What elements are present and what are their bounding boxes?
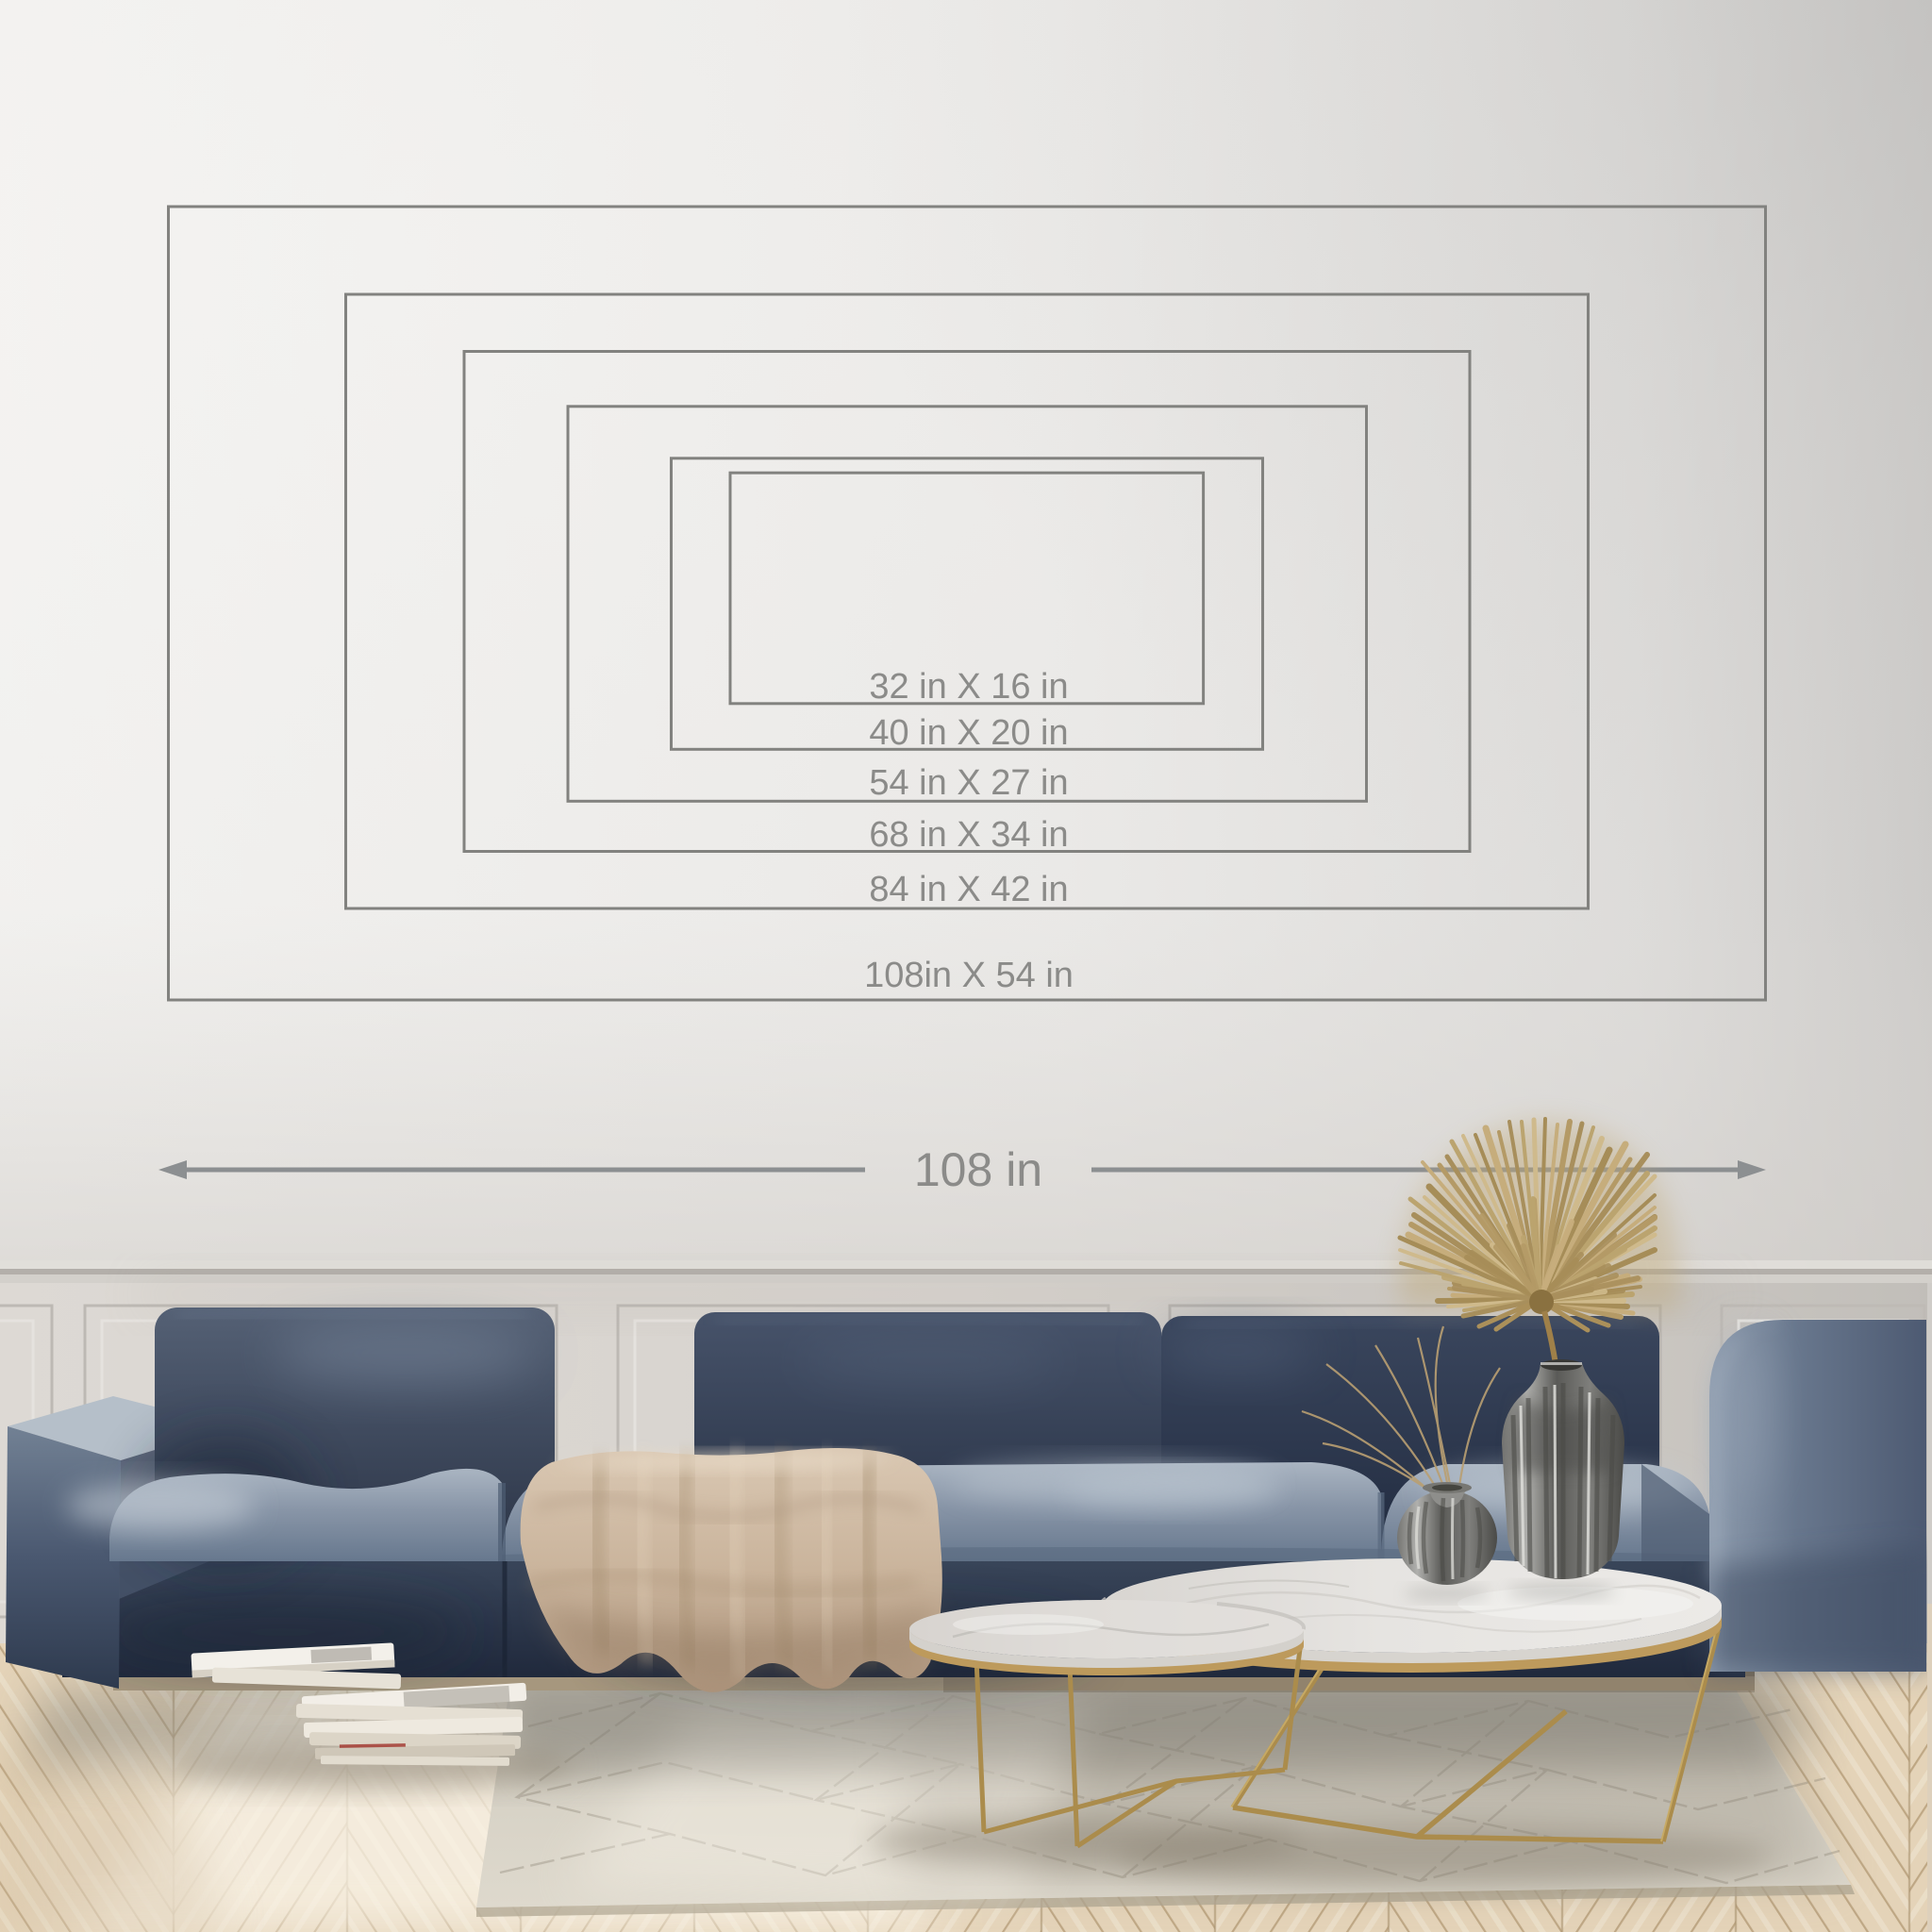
svg-text:68 in X 34 in: 68 in X 34 in bbox=[869, 815, 1068, 855]
svg-text:108in X 54 in: 108in X 54 in bbox=[864, 956, 1074, 995]
svg-text:54 in X 27 in: 54 in X 27 in bbox=[869, 763, 1068, 803]
svg-text:84 in X 42 in: 84 in X 42 in bbox=[869, 870, 1068, 909]
svg-text:40 in X 20 in: 40 in X 20 in bbox=[869, 713, 1068, 753]
svg-text:32 in X 16 in: 32 in X 16 in bbox=[869, 667, 1068, 707]
svg-text:108 in: 108 in bbox=[914, 1143, 1042, 1196]
